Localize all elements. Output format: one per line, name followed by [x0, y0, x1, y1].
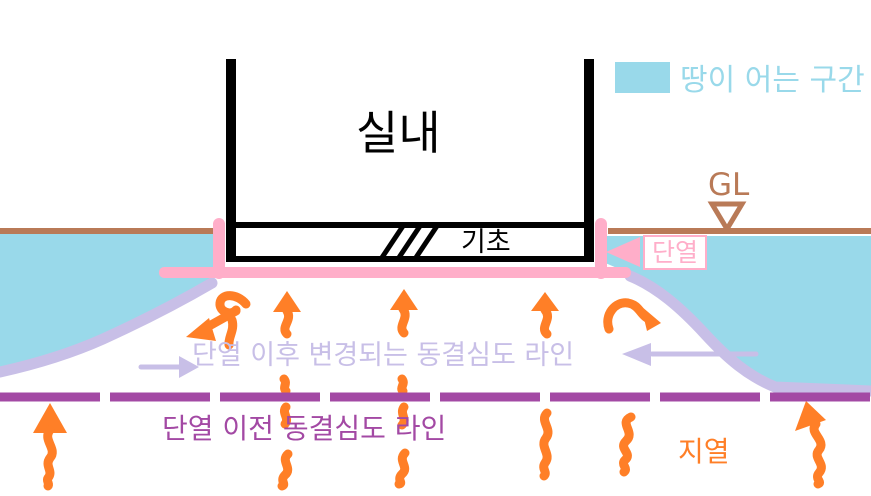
legend-swatch	[615, 62, 670, 93]
foundation-label: 기초	[461, 229, 511, 256]
frost-line-before-label: 단열 이전 동결심도 라인	[162, 415, 446, 443]
indoor-label: 실내	[356, 110, 441, 156]
ground-line-right	[608, 228, 871, 234]
geothermal-label: 지열	[678, 438, 730, 466]
heat-squiggle	[544, 413, 548, 476]
heat-arrow-up-icon	[531, 292, 559, 334]
insulation-label: 단열	[652, 240, 698, 265]
building-wall-right	[584, 59, 594, 262]
gl-marker-icon	[712, 204, 742, 229]
frost-line-after-arrow-right-icon	[141, 356, 199, 378]
ground-line-left	[0, 228, 213, 234]
insulation-label-box: 단열	[643, 235, 707, 270]
building-wall-left	[226, 59, 236, 262]
heat-arrow-up-icon	[390, 289, 418, 333]
building-outline	[226, 59, 594, 262]
foundation-bottom-line	[226, 256, 594, 262]
building-floor-line	[226, 222, 594, 228]
insulation-horizontal	[159, 267, 631, 278]
frost-line-after-label: 단열 이후 변경되는 동결심도 라인	[192, 342, 574, 369]
heat-squiggle	[623, 417, 631, 472]
heat-arrow-up-icon	[33, 403, 67, 486]
gl-label: GL	[708, 170, 749, 201]
heat-arrow-up-icon	[795, 401, 826, 484]
diagram-canvas: 실내 기초 땅이 어는 구간 GL 단열 단열 이후 변경되는 동결심도 라인 …	[0, 0, 871, 496]
heat-arrow-diagonal-icon	[186, 296, 246, 345]
heat-arrow-down-right-icon	[608, 303, 661, 331]
foundation-hatch-icon	[381, 226, 437, 259]
legend-frozen-zone-label: 땅이 어는 구간	[680, 66, 865, 96]
heat-arrow-up-icon	[273, 291, 301, 334]
